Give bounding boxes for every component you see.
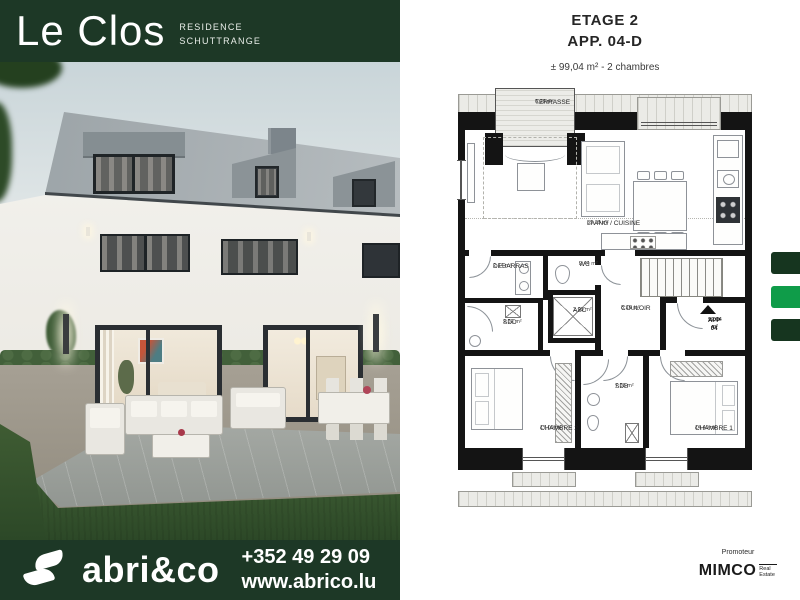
room-area: 7,53 m²: [615, 383, 634, 390]
abrico-leaf-icon: [22, 550, 74, 590]
dormer-window-1: [83, 132, 185, 194]
dormer-2-glass: [255, 166, 279, 198]
kitchen-sink: [717, 170, 739, 188]
table-bouquet: [363, 386, 371, 394]
stove-burners: [718, 199, 738, 221]
door-1-artwork: [138, 338, 164, 364]
promoter-logo: MIMCO: [699, 562, 757, 580]
bed2-fold: [494, 369, 495, 429]
project-subtitle-location: SCHUTTRANGE: [179, 34, 261, 48]
agency-brand: abri&co: [82, 549, 220, 591]
balcony-ledge-2: [635, 472, 699, 487]
etage-window-1: [100, 234, 190, 272]
top-wall-seg-1: [458, 112, 495, 130]
bottom-window-1: [522, 448, 565, 470]
dining-chair-1: [637, 171, 650, 180]
project-subtitle-residence: RESIDENCE: [179, 20, 261, 34]
wall-sdb-chambre1: [643, 356, 649, 448]
floor-indicator-etage3: [771, 252, 800, 274]
leaf-bottom-icon: [23, 566, 56, 588]
balcony-ledge-1: [512, 472, 576, 487]
bottom-window-2-glazing: [646, 457, 687, 461]
outdoor-sofa: [125, 395, 223, 435]
bottom-wall-seg-1: [458, 448, 522, 470]
dining-chair-2: [654, 171, 667, 180]
room-area: 17,00 m²: [540, 425, 562, 432]
sofa-seat-2: [586, 184, 620, 212]
floor-label: ETAGE 2: [455, 10, 755, 31]
attic-dotted-line: [465, 218, 745, 219]
bottom-window-1-glazing: [523, 457, 564, 461]
staircase: [640, 258, 723, 297]
wall-living-d: [635, 250, 745, 256]
unit-label-header: APP. 04-D: [455, 31, 755, 52]
tv-sideboard: [467, 143, 475, 203]
building-render-photo: [0, 62, 400, 540]
outdoor-armchair: [85, 403, 125, 455]
debarras-door-swing: [469, 256, 491, 278]
wall-couloir-left-b: [595, 285, 601, 356]
sconce-upper-2: [307, 232, 311, 241]
wall-wc-asc: [548, 290, 595, 295]
kitchen-counter-bottom: [601, 233, 687, 250]
wc-door-swing: [601, 265, 621, 285]
left-wall-upper: [458, 130, 465, 160]
lobby-wall-b: [703, 297, 745, 303]
unit-entrance-arrow-icon: [700, 305, 716, 314]
agency-website: www.abrico.lu: [242, 570, 377, 595]
duct-chambre1: [625, 423, 639, 443]
room-area: 2,99 m²: [573, 307, 592, 314]
floor-indicator-etage2-active: [771, 286, 800, 308]
door-2-mullion: [306, 330, 310, 417]
lobby-wall-left: [660, 303, 666, 350]
etage-window-2-curtains: [223, 241, 296, 273]
agency-phone: +352 49 29 09: [242, 545, 377, 570]
room-area: 2,44 m²: [579, 261, 598, 268]
promoter-tagline: Real Estate: [759, 564, 777, 579]
unit-details: ± 99,04 m² - 2 chambres: [455, 62, 755, 73]
kitchen-stove: [716, 197, 740, 223]
right-wall: [745, 130, 752, 448]
bed2-pillow-1: [475, 373, 489, 397]
etage-window-2: [221, 239, 298, 275]
bottom-wall-seg-3: [688, 448, 752, 470]
top-wall-seg-2: [575, 112, 637, 130]
dining-chair-row-front: [326, 424, 392, 440]
sink-bowl: [723, 174, 735, 185]
bed1-pillow-1: [722, 385, 735, 406]
unit-marker-area: 99,04 m²: [708, 317, 722, 332]
sofa-cushion-3: [191, 401, 217, 417]
door-1-plant: [118, 360, 134, 394]
room-area: 39,19 m²: [587, 220, 609, 227]
coffee-table: [152, 434, 210, 458]
outdoor-dining-table: [318, 392, 390, 424]
outdoor-sofa-2: [230, 387, 286, 429]
etage-window-1-mullion: [144, 236, 147, 270]
sdd-shower: [467, 306, 493, 332]
sofa-cushion-1: [131, 401, 157, 417]
room-area: 6,29 m²: [535, 99, 554, 106]
bed-chambre2: [471, 368, 523, 430]
sofa2-cushion: [236, 393, 280, 407]
hob-dots: [630, 236, 656, 249]
room-area: 2,52 m²: [503, 319, 522, 326]
project-subtitle: RESIDENCE SCHUTTRANGE: [179, 20, 261, 49]
agency-contact: +352 49 29 09 www.abrico.lu: [242, 545, 377, 595]
living-side-table: [517, 163, 545, 191]
bottom-window-2: [645, 448, 688, 470]
wall-bedrooms-d: [685, 350, 745, 356]
dormer-1-mullion: [132, 157, 135, 191]
sconce-lower-2: [373, 314, 379, 352]
washer-drum-2: [519, 281, 529, 291]
plan-header: ETAGE 2 APP. 04-D ± 99,04 m² - 2 chambre…: [455, 10, 755, 73]
sdd-sink: [469, 335, 481, 347]
bottom-wall-seg-2: [565, 448, 645, 470]
sofa-seat-1: [586, 146, 620, 174]
brand-header: Le Clos RESIDENCE SCHUTTRANGE: [0, 0, 400, 62]
dormer-2-curtains: [258, 169, 276, 195]
floor-indicator-etage1: [771, 319, 800, 341]
sdb-toilet: [587, 415, 599, 431]
technical-duct: [505, 305, 521, 318]
living-sofa: [581, 141, 625, 217]
agency-footer: abri&co +352 49 29 09 www.abrico.lu: [0, 540, 400, 600]
bed2-pillow-2: [475, 401, 489, 425]
sconce-upper-1: [86, 227, 90, 236]
sofa-cushion-2: [161, 401, 187, 417]
armchair-cushion: [90, 408, 120, 428]
room-area: 14,40 m²: [695, 425, 717, 432]
wardrobe-chambre1: [670, 361, 723, 377]
etage-window-3: [362, 243, 400, 278]
room-area: 2,14 m²: [493, 263, 512, 270]
left-wall-lower: [458, 200, 465, 448]
dormer-1-glass: [93, 154, 175, 194]
room-area: 8,16 m²: [621, 305, 640, 312]
project-title: Le Clos: [16, 10, 165, 52]
dining-table-plan: [633, 181, 687, 231]
sdb-shower: [583, 359, 609, 385]
sdb-sink: [587, 393, 600, 406]
sdd-wall-right: [538, 303, 543, 350]
floor-plan: TERRASSE 6,29 m²: [455, 85, 755, 510]
elevator-shaft: [553, 297, 593, 336]
bouquet: [178, 429, 185, 436]
wc-toilet: [555, 265, 570, 284]
wall-bedrooms-a: [465, 350, 550, 356]
promoter-label: Promoteur: [688, 549, 788, 556]
living-dormer-glazing: [641, 122, 717, 126]
left-window-glazing: [460, 161, 462, 199]
promoter-block: Promoteur MIMCO Real Estate: [688, 549, 788, 580]
wall-debarras-sdd: [465, 298, 543, 303]
dining-chair-3: [671, 171, 684, 180]
sconce-lower-1: [63, 314, 69, 354]
asc-wall-bottom: [548, 338, 595, 343]
dormer-3-glass: [352, 179, 376, 207]
wall-chambre2-sdb: [575, 356, 581, 448]
left-wall-window: [457, 160, 466, 200]
leaf-top-icon: [33, 549, 66, 571]
top-wall-seg-3: [721, 112, 752, 130]
roof-band-bottom: [458, 491, 752, 507]
kitchen-fridge: [717, 140, 739, 158]
